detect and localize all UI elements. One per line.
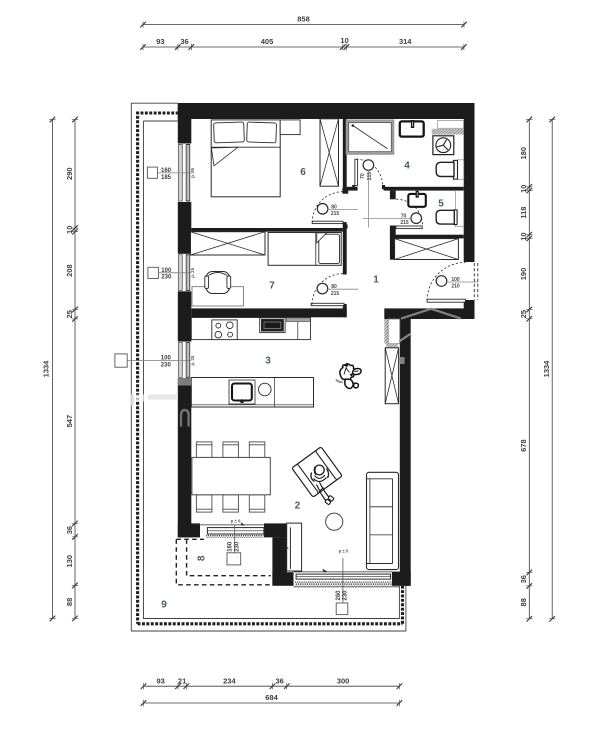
svg-text:93: 93: [156, 37, 164, 46]
svg-text:100: 100: [161, 356, 172, 362]
svg-text:190: 190: [519, 268, 528, 281]
svg-text:70: 70: [360, 173, 366, 179]
svg-text:858: 858: [297, 15, 310, 24]
svg-text:25: 25: [519, 310, 528, 318]
svg-text:230: 230: [343, 590, 349, 601]
svg-text:185: 185: [161, 175, 172, 181]
svg-text:215: 215: [331, 211, 340, 217]
svg-text:684: 684: [265, 693, 278, 702]
svg-text:5: 5: [438, 199, 444, 210]
svg-text:p ± 0: p ± 0: [339, 549, 349, 554]
svg-text:314: 314: [399, 37, 412, 46]
svg-text:260: 260: [336, 590, 342, 601]
svg-text:10: 10: [340, 36, 348, 45]
svg-text:215: 215: [367, 172, 373, 181]
svg-text:230: 230: [161, 363, 172, 369]
svg-text:9: 9: [161, 600, 167, 611]
svg-text:1334: 1334: [41, 360, 50, 378]
svg-text:100: 100: [451, 277, 460, 283]
svg-text:4: 4: [404, 161, 410, 172]
svg-text:93: 93: [157, 676, 165, 685]
svg-text:547: 547: [65, 415, 74, 428]
svg-text:36: 36: [65, 526, 74, 534]
svg-text:405: 405: [261, 37, 274, 46]
svg-text:80: 80: [331, 284, 337, 290]
svg-text:8: 8: [197, 555, 208, 561]
svg-text:10: 10: [519, 232, 528, 240]
svg-text:p. 85: p. 85: [190, 167, 195, 177]
svg-text:210: 210: [451, 284, 460, 290]
svg-text:p. 25: p. 25: [190, 267, 195, 277]
svg-text:7: 7: [269, 281, 275, 292]
svg-text:230: 230: [235, 541, 241, 552]
svg-text:88: 88: [65, 598, 74, 606]
svg-text:36: 36: [519, 575, 528, 583]
svg-text:21: 21: [178, 676, 186, 685]
svg-text:678: 678: [519, 439, 528, 452]
svg-text:1: 1: [373, 274, 379, 285]
svg-text:234: 234: [223, 676, 236, 685]
svg-text:118: 118: [519, 207, 528, 219]
svg-text:p. 25: p. 25: [190, 355, 195, 365]
svg-text:290: 290: [65, 167, 74, 180]
svg-text:215: 215: [331, 291, 340, 297]
svg-text:88: 88: [519, 598, 528, 606]
svg-text:300: 300: [337, 676, 350, 685]
svg-text:10: 10: [519, 185, 528, 193]
svg-text:70: 70: [401, 213, 407, 219]
svg-text:230: 230: [161, 275, 172, 281]
svg-text:10: 10: [65, 226, 74, 234]
svg-text:130: 130: [65, 555, 74, 568]
svg-text:80: 80: [331, 204, 337, 210]
svg-text:1334: 1334: [542, 360, 551, 378]
svg-text:36: 36: [180, 37, 188, 46]
svg-text:160: 160: [228, 541, 234, 552]
svg-text:p ± 0: p ± 0: [231, 518, 241, 523]
svg-text:100: 100: [161, 268, 172, 274]
svg-text:208: 208: [65, 264, 74, 277]
svg-text:2: 2: [295, 501, 301, 512]
svg-text:215: 215: [400, 220, 409, 226]
svg-text:6: 6: [300, 167, 306, 178]
svg-text:3: 3: [265, 356, 271, 367]
svg-text:36: 36: [276, 676, 284, 685]
svg-text:160: 160: [161, 168, 172, 174]
svg-text:180: 180: [519, 147, 528, 160]
svg-text:25: 25: [65, 310, 74, 318]
